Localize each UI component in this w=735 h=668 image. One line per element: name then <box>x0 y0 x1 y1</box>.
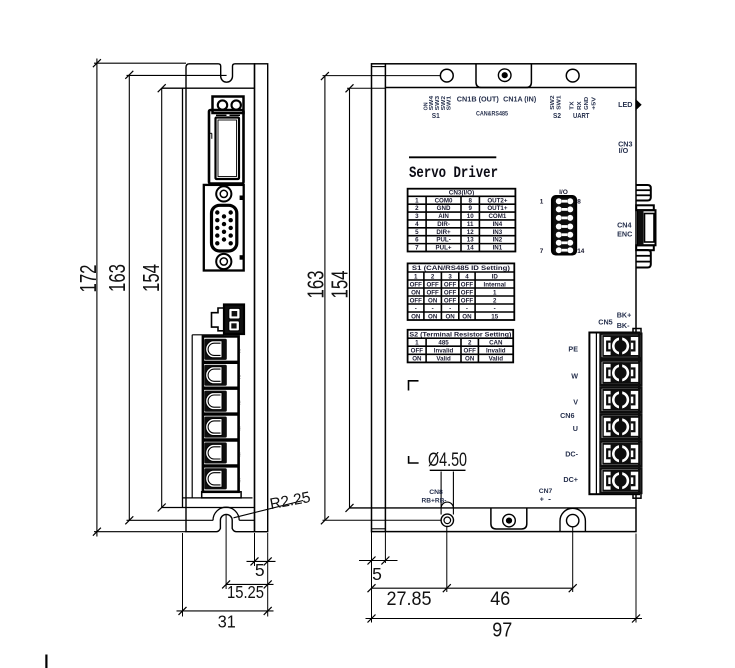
svg-text:PE: PE <box>568 345 578 354</box>
svg-text:172: 172 <box>75 265 101 293</box>
svg-text:5: 5 <box>415 229 419 236</box>
svg-text:OFF: OFF <box>444 281 457 288</box>
svg-text:CN3(I/O): CN3(I/O) <box>449 190 475 197</box>
svg-text:IN3: IN3 <box>493 229 503 236</box>
svg-text:Internal: Internal <box>484 281 507 288</box>
svg-text:2: 2 <box>468 340 472 347</box>
svg-text:13: 13 <box>467 237 474 244</box>
svg-text:-: - <box>466 305 468 312</box>
svg-text:6: 6 <box>415 237 419 244</box>
svg-text:Invalid: Invalid <box>434 348 454 355</box>
svg-text:163: 163 <box>104 264 130 292</box>
svg-text:Invalid: Invalid <box>486 348 506 355</box>
svg-text:-: - <box>415 305 417 312</box>
svg-text:IN1: IN1 <box>493 245 503 252</box>
svg-text:10: 10 <box>467 213 474 220</box>
svg-text:GND: GND <box>584 97 590 110</box>
svg-text:46: 46 <box>490 588 510 610</box>
svg-text:1: 1 <box>493 289 497 296</box>
svg-text:U: U <box>573 424 578 433</box>
svg-text:SW2: SW2 <box>550 95 556 110</box>
svg-text:CN5: CN5 <box>598 317 612 326</box>
svg-text:4: 4 <box>465 273 469 280</box>
svg-text:DIR+: DIR+ <box>436 229 451 236</box>
svg-text:CN4: CN4 <box>617 221 631 230</box>
svg-text:154: 154 <box>138 264 164 292</box>
svg-text:LED: LED <box>618 100 632 109</box>
svg-text:3: 3 <box>415 213 419 220</box>
svg-text:CN1A (IN): CN1A (IN) <box>503 97 536 104</box>
svg-text:···: ··· <box>238 400 243 405</box>
svg-text:+5V: +5V <box>592 97 598 110</box>
svg-text:CN8: CN8 <box>429 489 443 496</box>
svg-text:2: 2 <box>415 205 419 212</box>
svg-text:OFF: OFF <box>410 297 423 304</box>
svg-text:W: W <box>571 371 578 380</box>
svg-text:-: - <box>432 305 434 312</box>
svg-text:IN4: IN4 <box>493 221 503 228</box>
svg-text:PUL-: PUL- <box>436 237 450 244</box>
svg-text:ON: ON <box>411 289 421 296</box>
svg-text:OFF: OFF <box>461 281 474 288</box>
svg-text:CN6: CN6 <box>560 411 574 420</box>
svg-text:-: - <box>494 305 496 312</box>
svg-text:OFF: OFF <box>464 348 477 355</box>
svg-text:AIN: AIN <box>438 213 449 220</box>
svg-text:2: 2 <box>431 273 435 280</box>
svg-text:I/O: I/O <box>619 146 629 155</box>
svg-text:5: 5 <box>372 564 382 584</box>
svg-text:···: ··· <box>238 426 243 431</box>
svg-text:ON: ON <box>465 356 475 363</box>
svg-text:Servo Driver: Servo Driver <box>409 164 498 182</box>
svg-text:ON: ON <box>462 313 472 320</box>
svg-text:UART: UART <box>573 111 590 120</box>
svg-text:15.25: 15.25 <box>227 582 264 602</box>
svg-text:Ø4.50: Ø4.50 <box>428 449 467 471</box>
svg-text:S1 (CAN/RS485 ID Setting): S1 (CAN/RS485 ID Setting) <box>412 265 510 272</box>
svg-text:···: ··· <box>238 452 243 457</box>
svg-text:14: 14 <box>577 248 585 255</box>
svg-text:2: 2 <box>493 297 497 304</box>
svg-text:I/O: I/O <box>559 189 568 196</box>
svg-text:15: 15 <box>491 313 498 320</box>
svg-text:OFF: OFF <box>461 289 474 296</box>
svg-text:CAN: CAN <box>489 340 503 347</box>
svg-text:TX: TX <box>570 101 576 110</box>
svg-text:S2: S2 <box>553 111 561 120</box>
svg-text:Valid: Valid <box>436 356 451 363</box>
svg-text:DIR-: DIR- <box>437 221 450 228</box>
svg-text:PUL+: PUL+ <box>436 245 452 252</box>
svg-text:RB+RB-: RB+RB- <box>422 497 447 504</box>
svg-text:OUT2+: OUT2+ <box>487 197 508 204</box>
svg-text:9: 9 <box>468 205 472 212</box>
svg-text:-: - <box>449 305 451 312</box>
svg-text:···: ··· <box>238 478 243 483</box>
svg-text:14: 14 <box>467 245 474 252</box>
svg-text:CN1B (OUT): CN1B (OUT) <box>457 97 499 104</box>
svg-text:1: 1 <box>415 340 419 347</box>
svg-text:DC+: DC+ <box>563 475 578 484</box>
svg-text:SW1: SW1 <box>447 95 453 110</box>
svg-text:OUT1+: OUT1+ <box>487 205 508 212</box>
svg-text:DC-: DC- <box>565 450 578 459</box>
svg-text:OFF: OFF <box>461 297 474 304</box>
svg-text:3: 3 <box>448 273 452 280</box>
svg-text:ON: ON <box>411 313 421 320</box>
svg-text:-: - <box>548 494 551 504</box>
svg-text:···: ··· <box>238 349 243 354</box>
svg-text:COM0: COM0 <box>435 197 453 204</box>
svg-text:8: 8 <box>577 199 581 206</box>
svg-text:154: 154 <box>327 270 353 298</box>
svg-text:1: 1 <box>415 197 419 204</box>
svg-text:485: 485 <box>438 340 449 347</box>
svg-text:V: V <box>573 398 578 407</box>
svg-text:4: 4 <box>415 221 419 228</box>
svg-text:SW1: SW1 <box>556 95 562 110</box>
svg-text:···: ··· <box>238 375 243 380</box>
svg-text:RX: RX <box>577 101 583 110</box>
svg-text:OFF: OFF <box>426 281 439 288</box>
svg-text:S1: S1 <box>432 111 440 120</box>
svg-text:7: 7 <box>540 248 544 255</box>
svg-text:OFF: OFF <box>444 297 457 304</box>
svg-text:31: 31 <box>218 612 236 632</box>
svg-text:COM1: COM1 <box>488 213 506 220</box>
svg-text:ON: ON <box>445 313 455 320</box>
svg-text:ON: ON <box>412 356 422 363</box>
svg-text:BK+: BK+ <box>617 311 632 320</box>
svg-text:OFF: OFF <box>411 348 424 355</box>
svg-text:97: 97 <box>492 620 512 642</box>
svg-text:ON: ON <box>428 297 438 304</box>
svg-text:ON: ON <box>428 313 438 320</box>
svg-text:1: 1 <box>414 273 418 280</box>
svg-text:OFF: OFF <box>444 289 457 296</box>
svg-text:12: 12 <box>467 229 474 236</box>
svg-text:8: 8 <box>468 197 472 204</box>
svg-text:11: 11 <box>467 221 474 228</box>
svg-text:S2 (Terminal Resistor Setting): S2 (Terminal Resistor Setting) <box>409 331 511 338</box>
svg-text:BK-: BK- <box>617 321 630 330</box>
svg-text:OFF: OFF <box>426 289 439 296</box>
svg-text:1: 1 <box>540 199 544 206</box>
svg-text:Valid: Valid <box>489 356 504 363</box>
svg-text:7: 7 <box>415 245 419 252</box>
svg-text:163: 163 <box>303 271 329 299</box>
svg-text:OFF: OFF <box>410 281 423 288</box>
svg-text:+: + <box>540 497 544 504</box>
svg-text:IN2: IN2 <box>493 237 503 244</box>
svg-text:27.85: 27.85 <box>387 588 432 610</box>
svg-text:ENC: ENC <box>617 229 632 238</box>
svg-text:CAN&RS485: CAN&RS485 <box>476 110 508 117</box>
svg-text:GND: GND <box>437 205 451 212</box>
svg-text:5: 5 <box>255 560 265 580</box>
svg-text:ID: ID <box>492 273 499 280</box>
